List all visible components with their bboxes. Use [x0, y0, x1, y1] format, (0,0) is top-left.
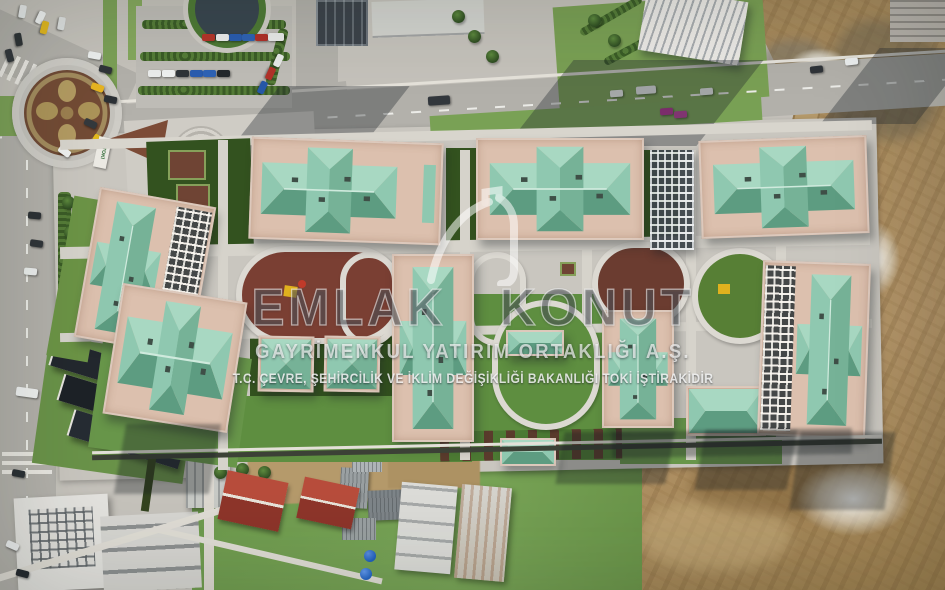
glass-facade-building [650, 150, 694, 250]
corner-building [890, 0, 945, 42]
white-warehouse [394, 482, 457, 575]
oval-arc-path [340, 252, 398, 346]
blue-water-tank [360, 568, 372, 580]
small-building-pyramid-roof [258, 336, 315, 393]
car [810, 65, 824, 73]
parked-car [190, 70, 203, 77]
u-shaped-courtyard [492, 300, 600, 430]
apartment-building-bottom-2 [602, 310, 674, 428]
tree [486, 50, 499, 63]
car [24, 267, 38, 275]
planter-box [560, 262, 576, 276]
parking-hedge [140, 52, 290, 61]
parked-car [255, 34, 268, 41]
building-shadow [612, 428, 852, 458]
parking-hedge [138, 86, 290, 95]
car [57, 16, 66, 30]
apartment-building-mid [392, 254, 474, 442]
planter-box [168, 150, 206, 180]
playground-equipment-red [298, 280, 306, 288]
playground-equipment-yellow [283, 285, 297, 298]
aerial-photo: TOKİ [0, 0, 945, 590]
window-facade [760, 265, 796, 431]
car [28, 211, 42, 219]
car [845, 57, 859, 65]
glass-canopy-building [316, 0, 368, 46]
courtyard-pavilion [506, 330, 564, 356]
parked-car [148, 70, 161, 77]
parked-car [217, 70, 230, 77]
tree [468, 30, 481, 43]
small-building-hip-roof [686, 386, 766, 436]
blue-water-tank [364, 550, 376, 562]
roundabout-clover-leaf [78, 102, 100, 120]
apartment-building-top-1 [248, 137, 443, 246]
parked-car [203, 70, 216, 77]
tree [588, 14, 601, 27]
side-roof-strip [422, 165, 436, 223]
parked-car [176, 70, 189, 77]
tree [452, 10, 465, 23]
parked-car [229, 34, 242, 41]
car [18, 4, 27, 18]
apartment-building-top-2 [476, 138, 644, 240]
roundabout-clover-leaf [58, 80, 76, 102]
rooftop-structure [371, 0, 484, 38]
parked-car [202, 34, 215, 41]
parked-car [162, 70, 175, 77]
playground-equipment-yellow [718, 284, 730, 294]
white-warehouse-rusty [454, 484, 512, 582]
parked-van [268, 33, 284, 41]
apartment-building-top-3 [698, 135, 869, 239]
tree [608, 34, 621, 47]
apartment-building-bottom-1 [102, 283, 247, 433]
apartment-building-right-tall [757, 260, 871, 439]
truck [428, 95, 451, 106]
small-building-pyramid-roof [324, 336, 381, 393]
parked-car [242, 34, 255, 41]
roundabout-clover-leaf [36, 102, 58, 120]
building-shadow [114, 424, 221, 494]
parked-car [216, 34, 229, 41]
